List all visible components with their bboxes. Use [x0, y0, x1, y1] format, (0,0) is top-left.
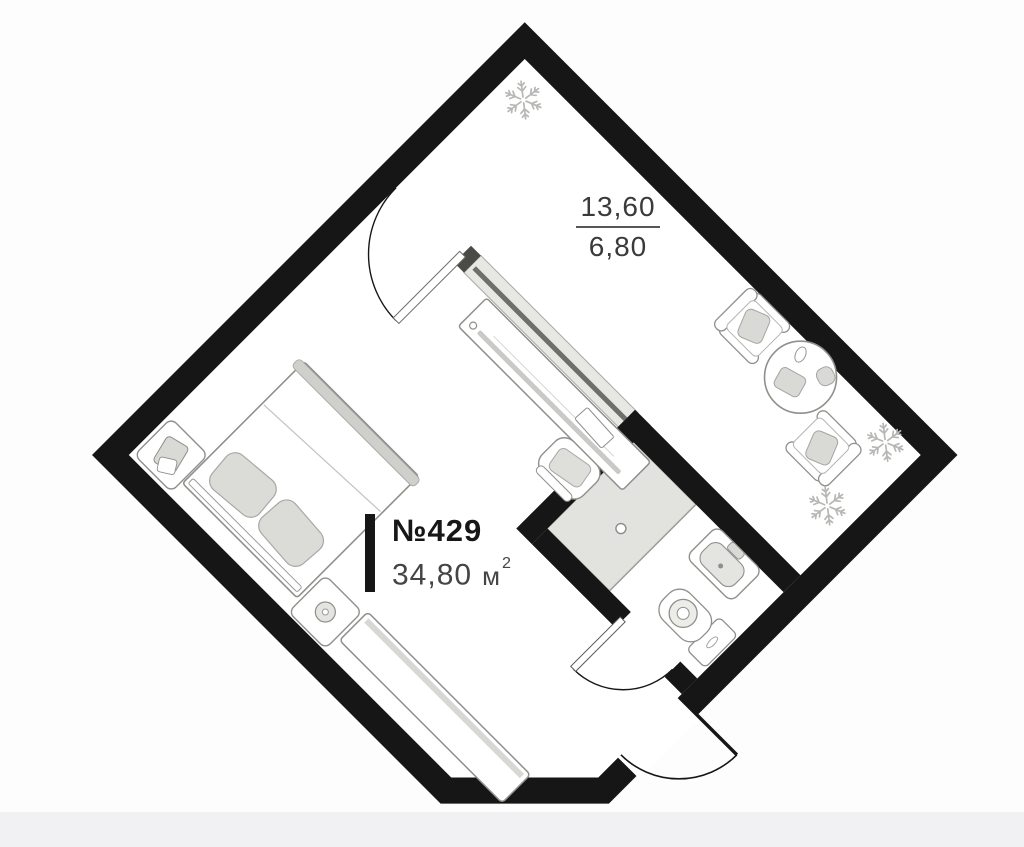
- balcony-area-reduced: 6,80: [566, 231, 670, 263]
- apartment-area-unit: м2: [482, 561, 511, 591]
- apartment-area: 34,80м2: [392, 553, 511, 593]
- apartment-label: №429 34,80м2: [365, 514, 511, 593]
- apartment-area-value: 34,80: [392, 559, 472, 592]
- floor-plan-drawing: [0, 0, 1024, 847]
- floor-plan-stage: №429 34,80м2 13,60 6,80: [0, 0, 1024, 847]
- balcony-area-total: 13,60: [576, 191, 659, 228]
- apartment-number: №429: [392, 514, 511, 548]
- balcony-area-label: 13,60 6,80: [566, 191, 670, 263]
- label-divider-bar: [365, 514, 375, 592]
- apartment-label-text: №429 34,80м2: [392, 514, 511, 593]
